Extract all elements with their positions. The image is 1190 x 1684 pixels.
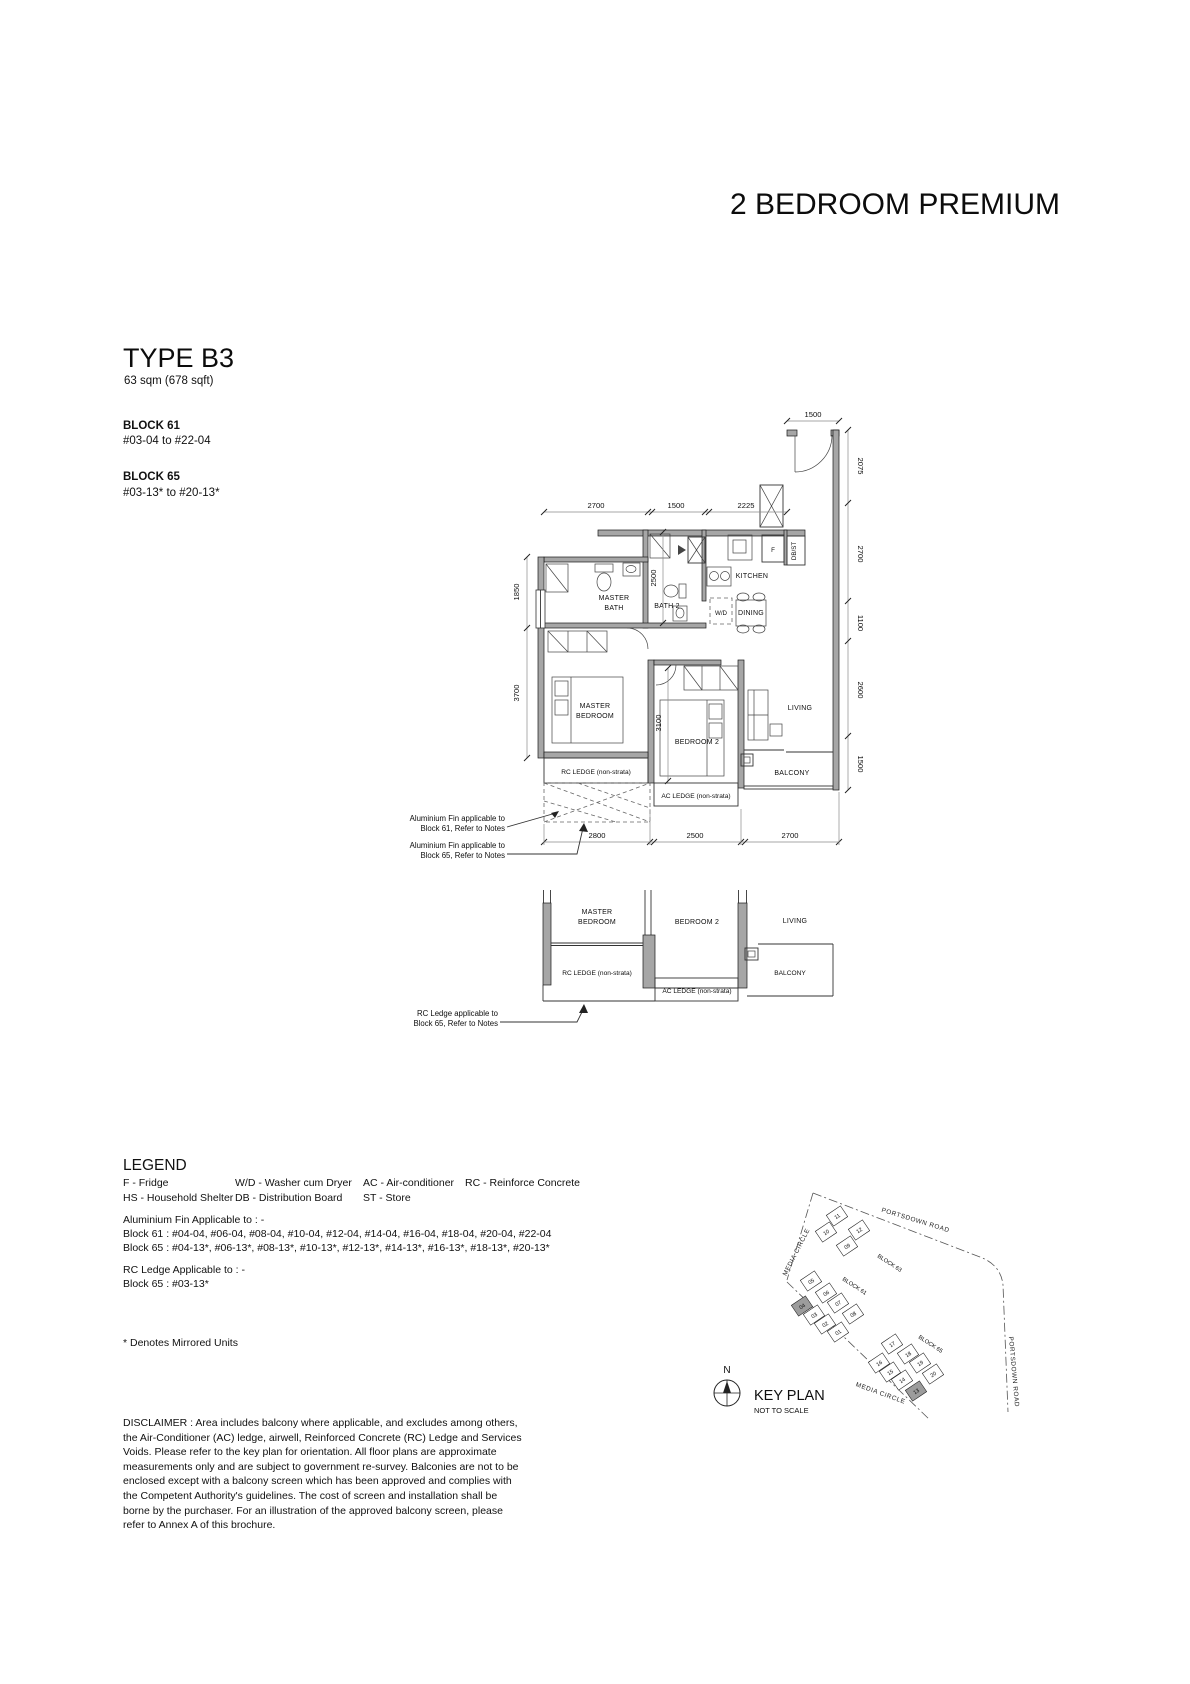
aluminium-fin-zone: [544, 783, 650, 822]
master-bedroom-label-2: BEDROOM: [576, 713, 614, 720]
legend-f: F - Fridge: [123, 1177, 169, 1189]
washer-dryer: W/D: [710, 598, 732, 624]
master-bath-fixtures: [546, 563, 640, 592]
dim-bedroom2-len: 3100: [654, 715, 663, 732]
dim-right-4: 1500: [856, 756, 865, 773]
page-title: 2 BEDROOM PREMIUM: [700, 188, 1060, 222]
dim-top-1: 1500: [668, 501, 685, 510]
north-label: N: [723, 1365, 730, 1376]
dim-left-1: 3700: [512, 685, 521, 702]
unit-area: 63 sqm (678 sqft): [124, 375, 213, 387]
ac-ledge-label: AC LEDGE (non-strata): [661, 793, 730, 800]
block63-label: BLOCK 63: [876, 1254, 903, 1274]
legend-st: ST - Store: [363, 1192, 411, 1204]
dining-label: DINING: [738, 610, 764, 617]
master-bedroom-window: [536, 590, 545, 628]
master-bath-label-2: BATH: [604, 605, 623, 612]
block-65-range: #03-13* to #20-13*: [123, 487, 220, 499]
floor-plan-svg: DB/ST: [380, 368, 870, 1038]
keyplan-block61: 05 06 07 08 04 03 02 01 BLOCK 61: [791, 1271, 867, 1342]
dim-right-2: 1100: [856, 615, 865, 631]
mirrored-note: * Denotes Mirrored Units: [123, 1336, 238, 1350]
lower-rc-ledge-label: RC LEDGE (non-strata): [562, 970, 632, 977]
master-bedroom-label-1: MASTER: [580, 703, 611, 710]
dim-right-3: 2600: [856, 682, 865, 699]
lower-bedroom2-label: BEDROOM 2: [675, 919, 719, 926]
disclaimer-text: DISCLAIMER : Area includes balcony where…: [123, 1416, 525, 1533]
road-media-left: MEDIA CIRCLE: [782, 1227, 812, 1277]
keyplan-subtitle: NOT TO SCALE: [754, 1406, 809, 1415]
kitchen-label: KITCHEN: [736, 573, 768, 580]
alu-fin-title: Aluminium Fin Applicable to : -: [123, 1213, 264, 1227]
road-portsdown-top: PORTSDOWN ROAD: [881, 1207, 951, 1234]
rc-ledge-title: RC Ledge Applicable to : -: [123, 1263, 245, 1277]
dim-right-0: 2075: [856, 458, 865, 475]
fridge: F: [762, 535, 784, 562]
annotation-alu-fin-61: Aluminium Fin applicable to Block 61, Re…: [410, 811, 559, 833]
dimension-lines: [524, 418, 851, 845]
block61-label: BLOCK 61: [841, 1277, 868, 1297]
dim-entry: 1500: [805, 410, 822, 419]
lower-balcony-label: BALCONY: [774, 970, 806, 977]
lower-living-label: LIVING: [783, 918, 807, 925]
alu61-line1: Aluminium Fin applicable to: [410, 814, 506, 823]
wd-label: W/D: [715, 610, 728, 617]
alu61-line2: Block 61, Refer to Notes: [420, 824, 505, 833]
living-furniture: [748, 690, 782, 740]
legend-db: DB - Distribution Board: [235, 1192, 342, 1204]
keyplan-title: KEY PLAN: [754, 1388, 825, 1404]
master-bath-label-1: MASTER: [599, 595, 630, 602]
floorplan-page: 2 BEDROOM PREMIUM TYPE B3 63 sqm (678 sq…: [0, 0, 1190, 1684]
block-61-range: #03-04 to #22-04: [123, 435, 211, 447]
alu-fin-block61: Block 61 : #04-04, #06-04, #08-04, #10-0…: [123, 1227, 551, 1241]
lower-master-bedroom-label-2: BEDROOM: [578, 919, 616, 926]
alu-fin-block65: Block 65 : #04-13*, #06-13*, #08-13*, #1…: [123, 1241, 550, 1255]
bedroom2-label: BEDROOM 2: [675, 739, 719, 746]
rc65-line2: Block 65, Refer to Notes: [413, 1019, 498, 1028]
living-label: LIVING: [788, 705, 812, 712]
key-plan-svg: PORTSDOWN ROAD MEDIA CIRCLE MEDIA CIRCLE…: [690, 1160, 1120, 1435]
dbst-label: DB/ST: [791, 542, 798, 560]
fridge-label: F: [771, 547, 775, 554]
north-compass-icon: N: [714, 1365, 740, 1406]
plan-walls: [538, 430, 839, 790]
legend-hs: HS - Household Shelter: [123, 1192, 233, 1204]
dim-top-0: 2700: [588, 501, 605, 510]
dim-bath2-len: 2500: [649, 570, 658, 587]
legend-ac: AC - Air-conditioner: [363, 1177, 454, 1189]
dim-bottom-0: 2800: [589, 831, 606, 840]
legend-wd: W/D - Washer cum Dryer: [235, 1177, 352, 1189]
dim-bottom-1: 2500: [687, 831, 704, 840]
dim-top-2: 2225: [738, 501, 755, 510]
lower-ac-ledge-label: AC LEDGE (non-strata): [662, 988, 731, 995]
lower-partial-plan: MASTER BEDROOM BEDROOM 2 LIVING RC LEDGE…: [543, 890, 833, 1001]
master-bedroom-furniture: [548, 628, 648, 743]
bath2-door-icon: [678, 545, 686, 555]
dim-bottom-2: 2700: [782, 831, 799, 840]
unit-type: TYPE B3: [123, 343, 234, 374]
bath2-label: BATH 2: [654, 603, 680, 610]
block65-label: BLOCK 65: [917, 1335, 944, 1355]
ac-shaft-entry: [760, 485, 783, 527]
dim-left-0: 1850: [512, 584, 521, 601]
entrance-door: [795, 435, 832, 472]
annotation-rc-ledge-65: RC Ledge applicable to Block 65, Refer t…: [413, 1004, 588, 1028]
balcony-label: BALCONY: [774, 770, 809, 777]
legend-title: LEGEND: [123, 1157, 187, 1175]
rc65-line1: RC Ledge applicable to: [417, 1009, 499, 1018]
dim-right-1: 2700: [856, 546, 865, 563]
lower-master-bedroom-label-1: MASTER: [582, 909, 613, 916]
block-65-name: BLOCK 65: [123, 471, 180, 483]
road-portsdown-right: PORTSDOWN ROAD: [1007, 1336, 1020, 1407]
legend-rc: RC - Reinforce Concrete: [465, 1177, 580, 1189]
rc-ledge-block65: Block 65 : #03-13*: [123, 1277, 209, 1291]
block-61-name: BLOCK 61: [123, 420, 180, 432]
rc-ledge-label: RC LEDGE (non-strata): [561, 769, 631, 776]
alu65-line1: Aluminium Fin applicable to: [410, 841, 506, 850]
alu65-line2: Block 65, Refer to Notes: [420, 851, 505, 860]
dbst-closet: DB/ST: [787, 536, 805, 565]
